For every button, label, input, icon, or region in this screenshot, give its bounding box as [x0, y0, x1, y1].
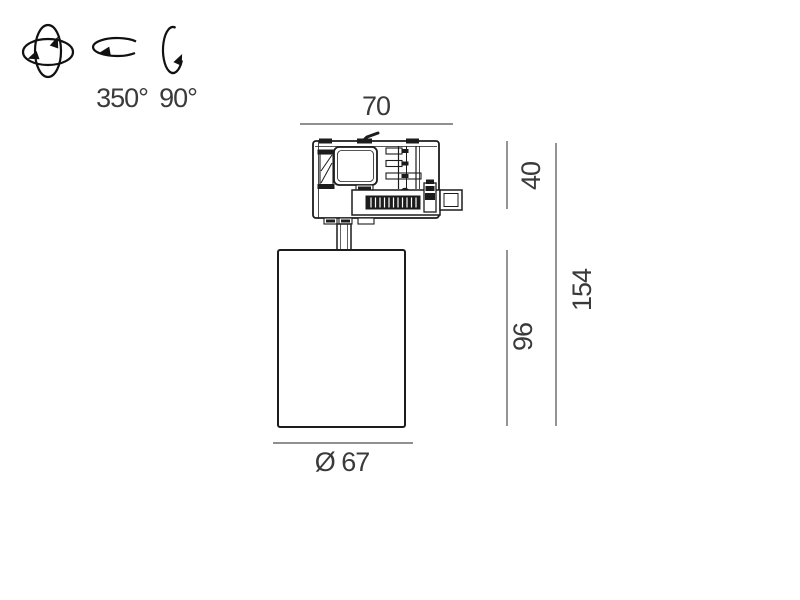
- spring-column: [318, 150, 335, 190]
- dim-label-adapter-height: 40: [516, 162, 546, 190]
- track-adapter-drawing: [313, 133, 462, 250]
- dim-label-body-height: 96: [508, 323, 538, 351]
- dim-label-adapter-width: 70: [362, 91, 390, 121]
- dim-label-diameter: Ø 67: [315, 447, 370, 477]
- pan-range-label: 350°: [96, 83, 148, 113]
- track-contact-box: [440, 190, 462, 210]
- dim-label-total-height: 154: [567, 268, 597, 311]
- gear-block: [334, 147, 377, 191]
- tilt-range-label: 90°: [159, 83, 197, 113]
- cylinder-body-drawing: [278, 250, 405, 427]
- side-knob: [424, 180, 436, 213]
- gimbal-rotation-icon: [23, 25, 73, 77]
- pan-rotation-icon: [93, 38, 136, 57]
- adapter-feet: [324, 218, 374, 224]
- tilt-rotation-icon: [163, 27, 186, 73]
- rotation-icons-group: [23, 25, 186, 77]
- dimension-diagram: 350° 90°: [0, 0, 800, 600]
- stem: [337, 224, 351, 250]
